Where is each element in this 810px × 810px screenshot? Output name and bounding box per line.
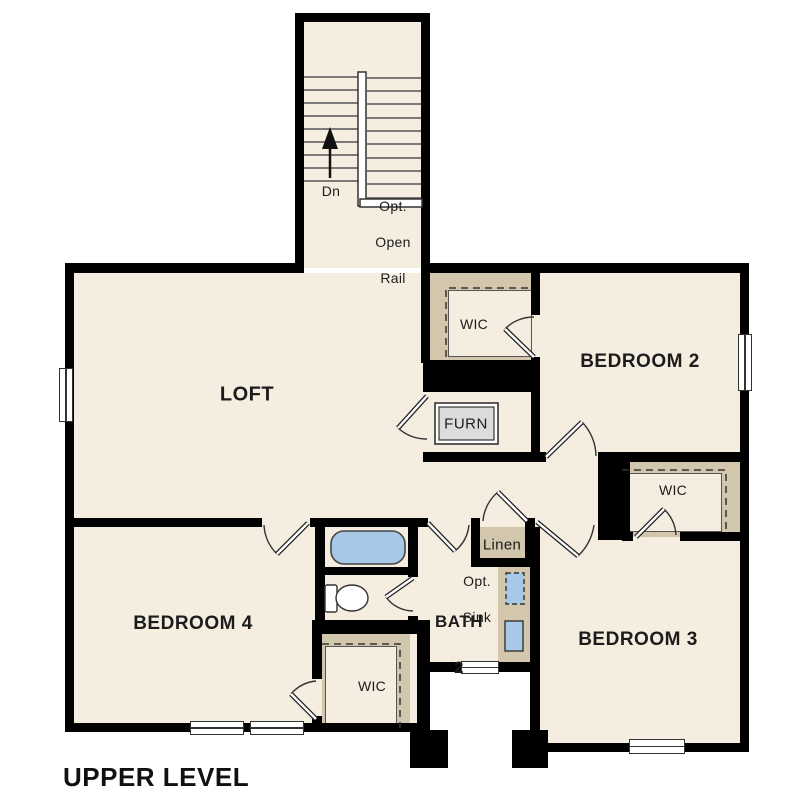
linen-label: Linen xyxy=(483,537,521,554)
wall xyxy=(65,723,430,732)
wall xyxy=(417,620,430,732)
wall xyxy=(65,263,74,732)
wic-bedroom4-label: WIC xyxy=(358,678,386,694)
wall xyxy=(531,272,540,315)
opt-sink-label: Opt. Sink xyxy=(463,554,491,626)
wall xyxy=(680,532,749,541)
wall xyxy=(65,263,304,273)
wall xyxy=(421,263,430,363)
bath-vanity-counter xyxy=(498,563,530,662)
wall xyxy=(531,357,540,462)
bedroom2-label: BEDROOM 2 xyxy=(580,351,700,373)
open-rail-line1: Opt. xyxy=(379,198,407,214)
wall xyxy=(295,13,304,273)
wall xyxy=(312,634,322,679)
wall xyxy=(622,532,633,541)
window-bedroom3 xyxy=(629,739,685,754)
open-rail-line3: Rail xyxy=(380,270,405,286)
open-rail-label: Opt. Open Rail xyxy=(375,179,410,287)
opt-sink-line1: Opt. xyxy=(463,573,491,589)
window-bedroom4-left xyxy=(190,721,244,735)
wall xyxy=(598,452,630,540)
window-bedroom2 xyxy=(738,334,752,391)
open-rail-line2: Open xyxy=(375,234,410,250)
wall xyxy=(65,518,262,527)
wall xyxy=(421,263,749,273)
wall xyxy=(423,452,540,462)
window-loft xyxy=(59,368,73,422)
furnace-label: FURN xyxy=(444,416,488,433)
wall xyxy=(325,567,418,575)
wall xyxy=(423,360,540,392)
loft-label: LOFT xyxy=(220,384,274,407)
wall xyxy=(312,716,322,732)
wall xyxy=(312,620,428,634)
wall xyxy=(540,452,546,462)
opt-sink-line2: Sink xyxy=(463,609,491,625)
bedroom4-label: BEDROOM 4 xyxy=(133,613,253,635)
wall xyxy=(295,13,430,22)
bedroom3-floor xyxy=(540,668,740,743)
wall xyxy=(421,13,430,273)
window-bedroom4-right xyxy=(250,721,304,735)
wall xyxy=(408,518,418,577)
wall xyxy=(315,527,325,630)
wall xyxy=(410,730,448,768)
exterior-notch xyxy=(430,672,530,730)
bedroom3-label: BEDROOM 3 xyxy=(578,629,698,651)
floor-plan: LOFT BEDROOM 2 BEDROOM 4 BEDROOM 3 BATH … xyxy=(0,0,810,810)
page-title: UPPER LEVEL xyxy=(63,762,249,793)
bath2-label-line2: 2 xyxy=(454,658,464,677)
wic-bedroom3-label: WIC xyxy=(659,482,687,498)
wic-bedroom2-label: WIC xyxy=(460,316,488,332)
stairs-down-label: Dn xyxy=(322,183,341,199)
